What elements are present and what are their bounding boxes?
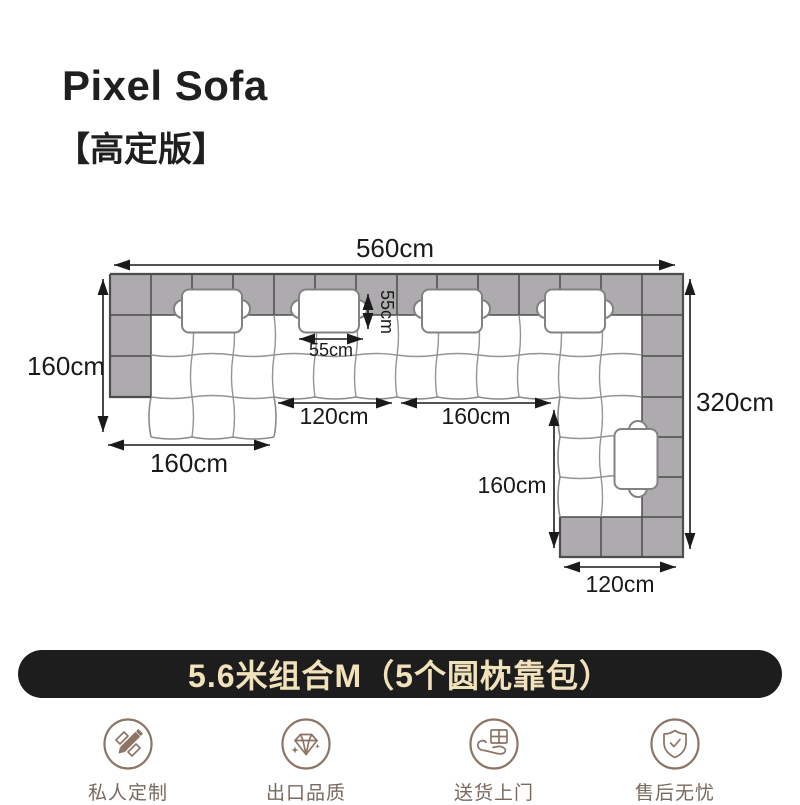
dimension-middle-span: 120cm	[278, 403, 392, 429]
feature-custom: 私人定制	[53, 717, 203, 805]
product-detail-image: { "header": { "title": "Pixel Sofa", "su…	[0, 0, 800, 800]
svg-text:120cm: 120cm	[585, 571, 654, 597]
pencil-ruler-icon	[101, 717, 155, 771]
svg-text:55cm: 55cm	[309, 340, 353, 360]
pillow-5	[615, 421, 658, 497]
dimension-total-width: 560cm	[114, 233, 675, 265]
dimension-right-chaise-depth: 160cm	[477, 410, 554, 548]
pillow-1	[174, 290, 250, 333]
dimension-right-length: 320cm	[690, 279, 774, 549]
pillow-4	[537, 290, 613, 333]
spec-banner-text: 5.6米组合M（5个圆枕靠包）	[188, 651, 612, 697]
sofa-dimension-diagram: 560cm 160cm 320cm 160cm 55cm 55cm 120cm …	[0, 0, 800, 625]
svg-text:160cm: 160cm	[27, 351, 105, 381]
pillow-3	[414, 290, 490, 333]
feature-label: 出口品质	[231, 778, 381, 805]
product-spec-banner: 5.6米组合M（5个圆枕靠包）	[18, 650, 782, 698]
dimension-left-depth: 160cm	[27, 279, 105, 432]
svg-text:320cm: 320cm	[696, 387, 774, 417]
svg-text:120cm: 120cm	[299, 403, 368, 429]
svg-text:160cm: 160cm	[150, 448, 228, 478]
diamond-icon	[279, 717, 333, 771]
feature-aftersale: 售后无忧	[600, 717, 750, 805]
hand-box-icon	[467, 717, 521, 771]
svg-text:55cm: 55cm	[377, 290, 397, 334]
shield-check-icon	[648, 717, 702, 771]
svg-text:560cm: 560cm	[356, 233, 434, 263]
dimension-right-span: 160cm	[401, 403, 551, 429]
feature-label: 售后无忧	[600, 778, 750, 805]
svg-text:160cm: 160cm	[441, 403, 510, 429]
feature-delivery: 送货上门	[419, 717, 569, 805]
dimension-left-chaise-width: 160cm	[108, 445, 270, 478]
dimension-right-chaise-width: 120cm	[564, 567, 676, 597]
feature-label: 送货上门	[419, 778, 569, 805]
svg-text:160cm: 160cm	[477, 472, 546, 498]
feature-label: 私人定制	[53, 778, 203, 805]
feature-quality: 出口品质	[231, 717, 381, 805]
pillow-2	[291, 290, 367, 333]
